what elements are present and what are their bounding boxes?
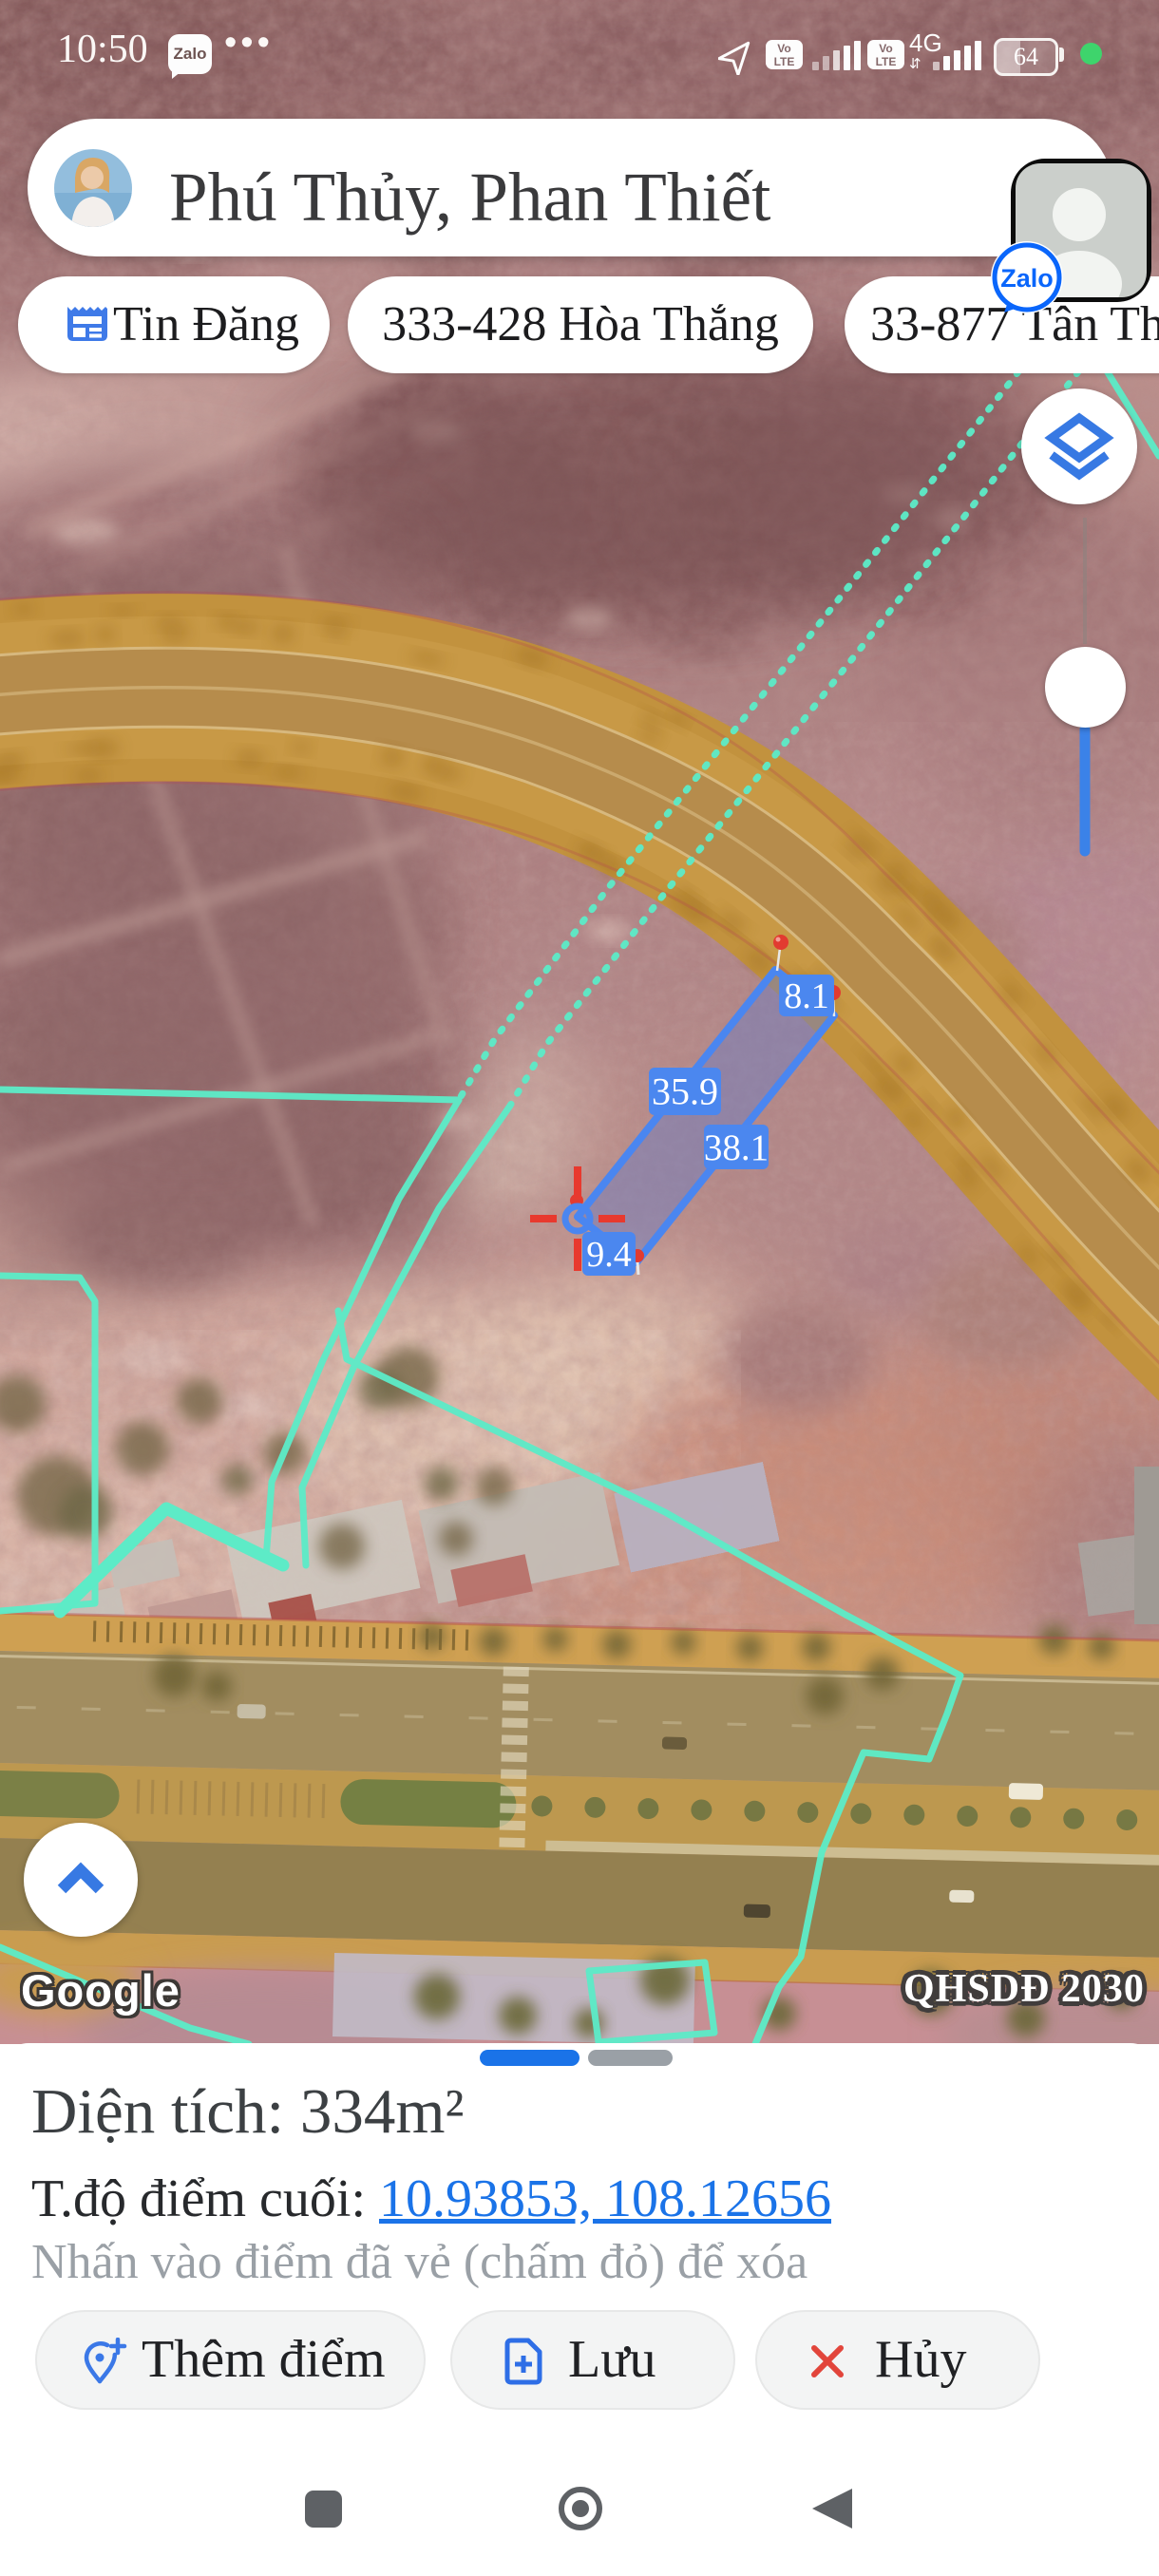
svg-text:9.4: 9.4 [586,1235,632,1275]
svg-text:8.1: 8.1 [784,976,829,1016]
svg-text:38.1: 38.1 [704,1127,769,1168]
svg-text:Zalo: Zalo [1000,264,1054,293]
svg-text:35.9: 35.9 [652,1070,718,1113]
